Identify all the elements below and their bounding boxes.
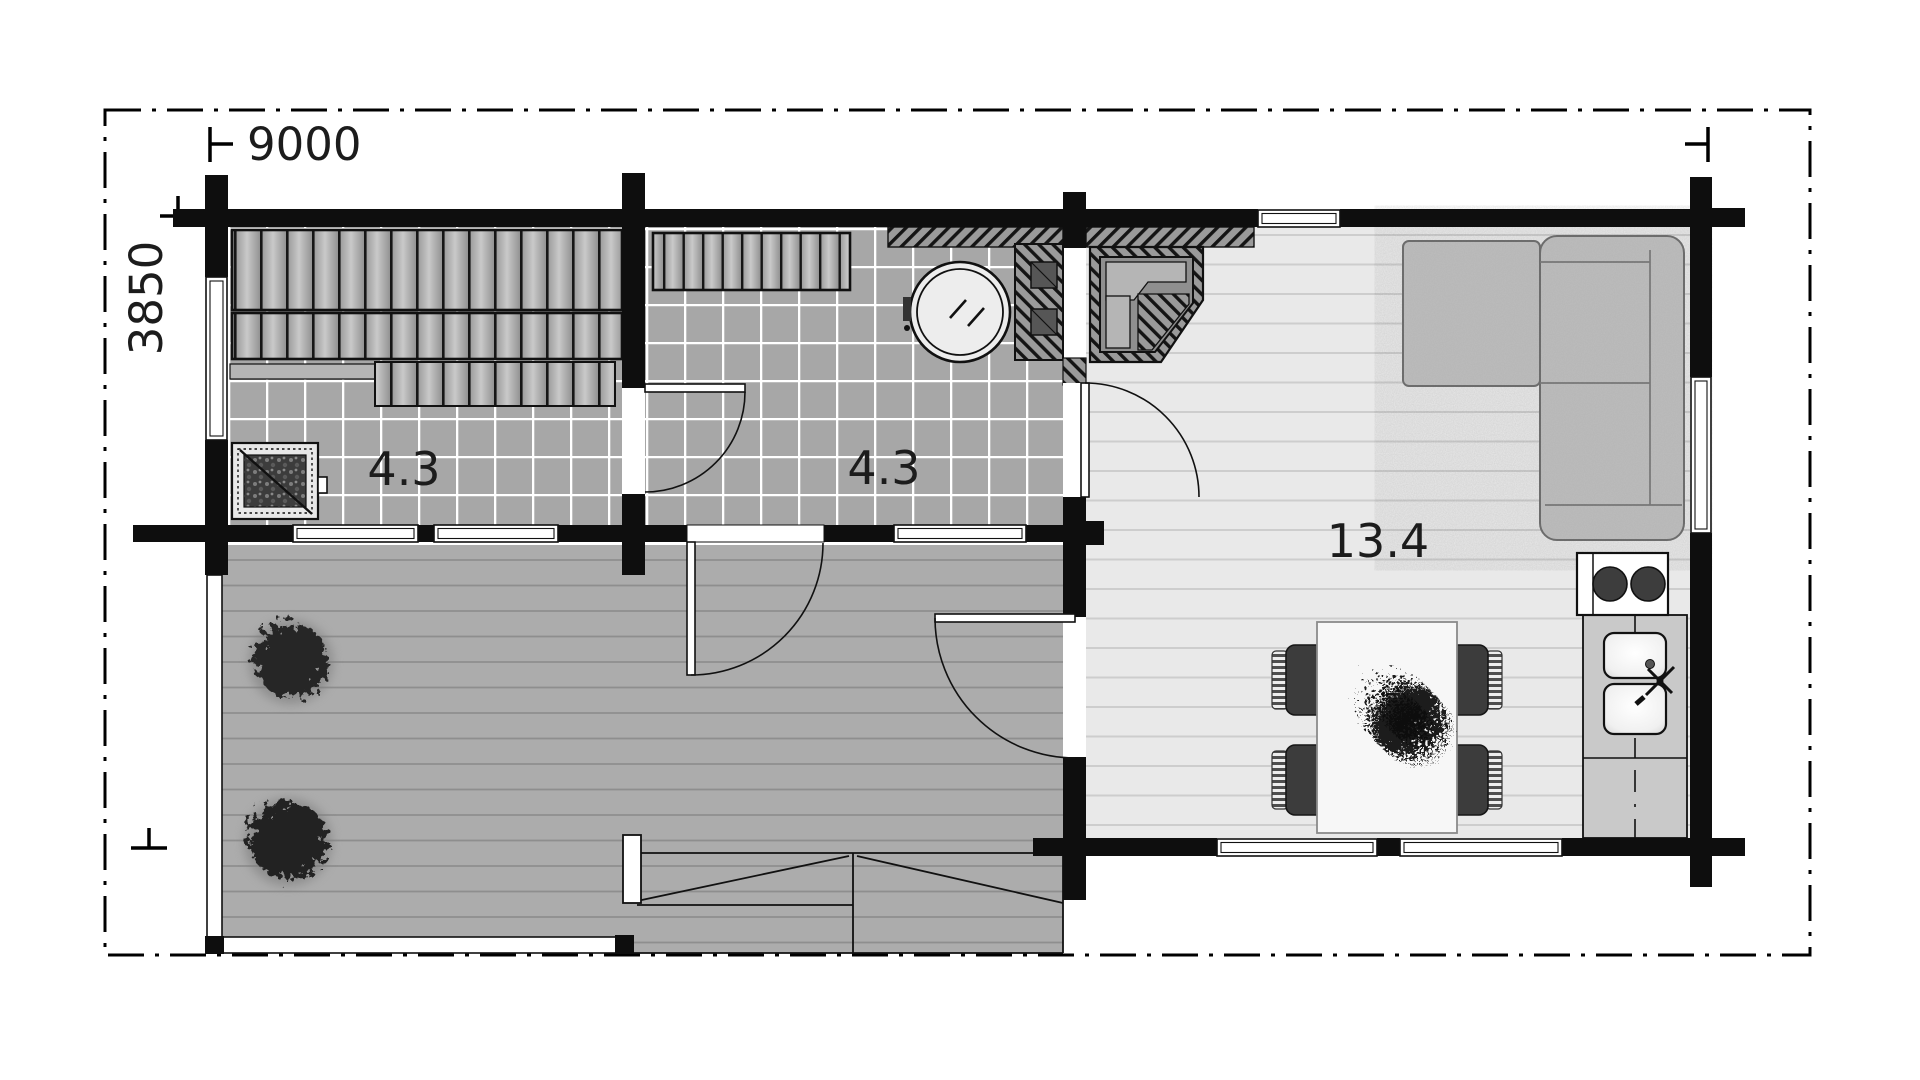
door-leaf [1081, 383, 1089, 497]
dimension-height-tick-bottom [131, 828, 167, 848]
wall-corner-extension [1712, 838, 1745, 856]
wall-right [1690, 177, 1712, 377]
dimension-width-label: 9000 [247, 118, 362, 171]
sauna-ledge [230, 364, 376, 379]
wall-corner-extension [1712, 208, 1745, 227]
burner-icon [1631, 567, 1665, 601]
dimension-height-label: 3850 [120, 241, 173, 356]
sauna-bench-step [375, 362, 615, 406]
sink-lower [1604, 684, 1666, 734]
railing-post-corner [205, 936, 224, 954]
door-leaf [687, 542, 695, 675]
cooktop [1577, 553, 1668, 615]
door-leaf [645, 384, 745, 392]
wall-junction [1086, 521, 1104, 545]
room-label-sauna: 4.3 [367, 442, 440, 496]
wall-sauna-divider [622, 494, 645, 575]
wall-corner-extension [173, 209, 205, 227]
terrace-railing-left [207, 575, 222, 953]
tub-tap [903, 297, 911, 321]
window-living-south-1 [1217, 839, 1377, 856]
bush-icon [249, 801, 327, 879]
bush-icon [254, 623, 328, 697]
sink-upper [1604, 633, 1666, 678]
heater-tab [318, 477, 327, 493]
wall-bottom [1377, 838, 1400, 856]
dimension-height: 3850 [120, 196, 196, 848]
window-living-east [1691, 377, 1711, 533]
burner-icon [1593, 567, 1627, 601]
window-sauna-south-1 [293, 525, 418, 542]
room-label-shower: 4.3 [847, 441, 920, 495]
wall-middle [418, 525, 434, 542]
stair-post [623, 835, 641, 903]
tub-tap-dot [904, 325, 910, 331]
floor-plan: 9000 3850 [0, 0, 1920, 1080]
wall-top [1340, 209, 1712, 227]
sauna-heater [232, 443, 327, 519]
sauna-bench-upper [232, 230, 622, 310]
wall-left [205, 440, 228, 575]
hatched-ledge-living [1086, 227, 1254, 247]
dimension-width-tick-right [1685, 127, 1708, 162]
wall-top [205, 209, 1258, 227]
sauna-bench-lower [232, 313, 622, 359]
wall-middle [824, 525, 894, 542]
dimension-width-tick-left [210, 127, 233, 162]
wall-middle [133, 525, 293, 542]
terrace-deck [222, 545, 1063, 953]
window-sauna-left [206, 277, 227, 440]
dimension-width: 9000 [210, 118, 1708, 171]
window-sauna-south-2 [434, 525, 558, 542]
washstand [1015, 244, 1063, 360]
sofa-body [1540, 236, 1684, 540]
floor-plan-svg: 9000 3850 [0, 0, 1920, 1080]
wall-bottom [1562, 838, 1712, 856]
room-label-living: 13.4 [1327, 514, 1429, 568]
wall-living-divider [1063, 497, 1086, 617]
wall-living-divider [1063, 192, 1086, 248]
wall-sauna-divider [622, 173, 645, 388]
fireplace-shelf [1106, 296, 1130, 348]
sofa-chaise [1403, 241, 1540, 386]
hatched-wall-tab [1063, 358, 1086, 385]
wall-bottom [1033, 838, 1217, 856]
door-leaf [935, 614, 1075, 622]
sink-drain [1646, 660, 1655, 669]
window-living-north [1258, 210, 1340, 227]
railing-post-end [615, 935, 634, 954]
wall-right [1690, 533, 1712, 887]
terrace-railing-bottom [222, 937, 617, 953]
shower-bench [653, 233, 850, 290]
table-plant [1360, 673, 1436, 749]
wall-living-divider [1063, 757, 1086, 900]
wall-left [205, 175, 228, 277]
window-living-south-2 [1400, 839, 1562, 856]
window-shower-south [894, 525, 1026, 542]
